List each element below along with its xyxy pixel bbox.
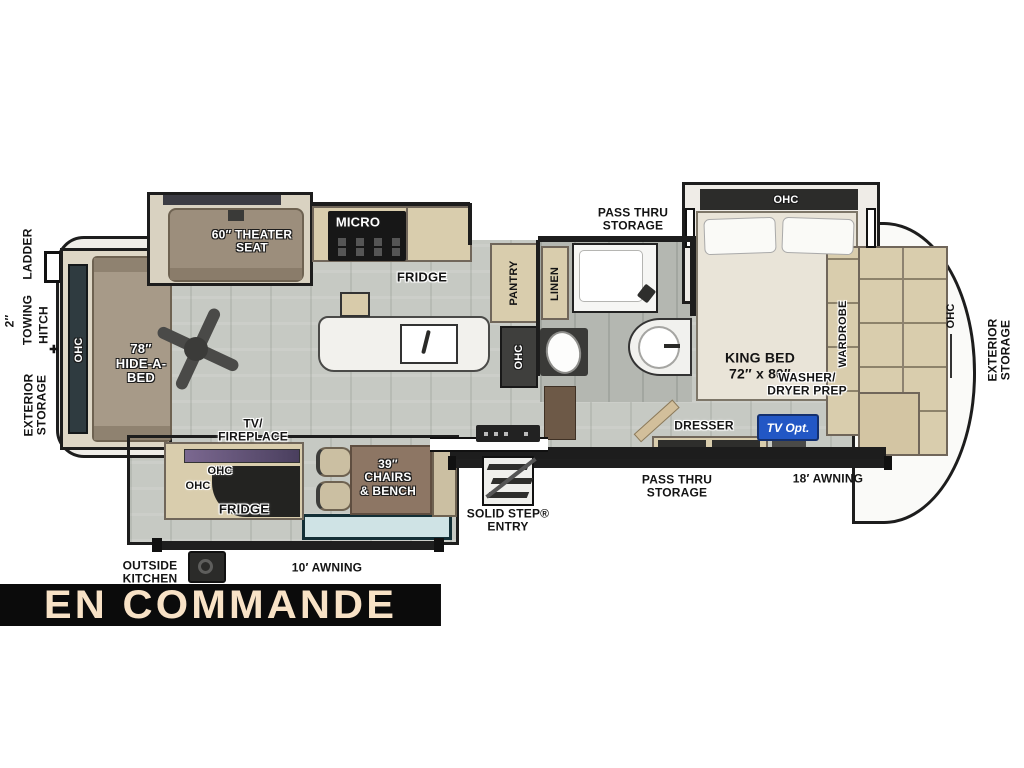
awning-end-cap (884, 456, 892, 470)
theater-seat-label: 60″ THEATER SEAT (212, 229, 292, 256)
pass-thru-top-label: PASS THRU STORAGE (598, 207, 668, 234)
awning-end-cap (434, 538, 444, 552)
pass-thru-bottom-label: PASS THRU STORAGE (642, 474, 712, 501)
tv-fireplace-unit (184, 449, 300, 463)
tv-fireplace-label: TV/ FIREPLACE (218, 418, 288, 445)
sofa-ohc-label: OHC (73, 337, 85, 362)
grill-burner (198, 559, 213, 574)
bath-right-wall (690, 236, 696, 316)
theater-console (228, 210, 244, 221)
pillow (781, 217, 854, 255)
front-ohc-pointer (950, 334, 952, 378)
front-ohc-label: OHC (945, 303, 957, 328)
rear-exterior-storage-label: EXTERIOR STORAGE (23, 374, 50, 437)
entry-label: SOLID STEP® ENTRY (467, 508, 549, 535)
fridge-cabinet (406, 206, 472, 262)
hall-ohc-label: OHC (513, 344, 525, 369)
ladder-label: LADDER (21, 228, 34, 279)
awning-18-label: 18′ AWNING (793, 472, 863, 485)
kitchen-fridge-label: FRIDGE (397, 271, 447, 286)
awning-10-bar (156, 541, 442, 550)
bath-sliding-door (544, 386, 576, 440)
outside-fridge-label: FRIDGE (219, 503, 269, 518)
bedroom-ohc-label: OHC (773, 194, 798, 206)
griddle-dots (484, 432, 488, 436)
dinette-chair (316, 481, 352, 511)
bed-window-right (866, 208, 876, 248)
wardrobe-label: WARDROBE (837, 301, 849, 368)
theater-window (163, 195, 281, 205)
dinette-window (302, 514, 452, 540)
floorplan-canvas: OHC 78″ HIDE-A- BED LADDER 2″ TOWING HIT… (0, 0, 1024, 768)
hide-a-bed-label: 78″ HIDE-A- BED (116, 342, 167, 386)
stool (340, 292, 370, 317)
hitch-size-label: 2″ (3, 315, 16, 328)
awning-end-cap (152, 538, 162, 552)
bath-left-wall (536, 240, 540, 376)
chairs-bench-label: 39″ CHAIRS & BENCH (360, 458, 416, 498)
stove-grate (338, 238, 346, 246)
ent-ohc-label-2: OHC (185, 480, 210, 492)
bath-top-wall (538, 236, 696, 242)
pantry-label: PANTRY (508, 260, 520, 305)
order-status-banner: EN COMMANDE (0, 584, 441, 626)
pillow (703, 217, 776, 255)
vanity-faucet-icon (664, 344, 680, 348)
ceiling-fan-icon (184, 337, 208, 361)
dresser-label: DRESSER (674, 419, 733, 432)
hitch-label: HITCH (37, 306, 50, 344)
shower-pan (579, 250, 643, 302)
linen-label: LINEN (549, 267, 561, 301)
awning-end-cap (448, 456, 456, 470)
dinette-chair (316, 447, 352, 477)
ent-ohc-label-1: OHC (207, 465, 232, 477)
theater-seat-front (170, 268, 302, 280)
kitchen-end-wall (468, 203, 472, 245)
towing-label: TOWING (21, 295, 34, 345)
front-exterior-storage-label: EXTERIOR STORAGE (987, 319, 1014, 382)
hitch-marker-icon: ✚ (49, 344, 58, 356)
tv-opt-badge: TV Opt. (757, 414, 819, 441)
micro-label: MICRO (336, 216, 380, 231)
awning-10-label: 10′ AWNING (292, 561, 362, 574)
washer-dryer-label: WASHER/ DRYER PREP (767, 372, 847, 399)
